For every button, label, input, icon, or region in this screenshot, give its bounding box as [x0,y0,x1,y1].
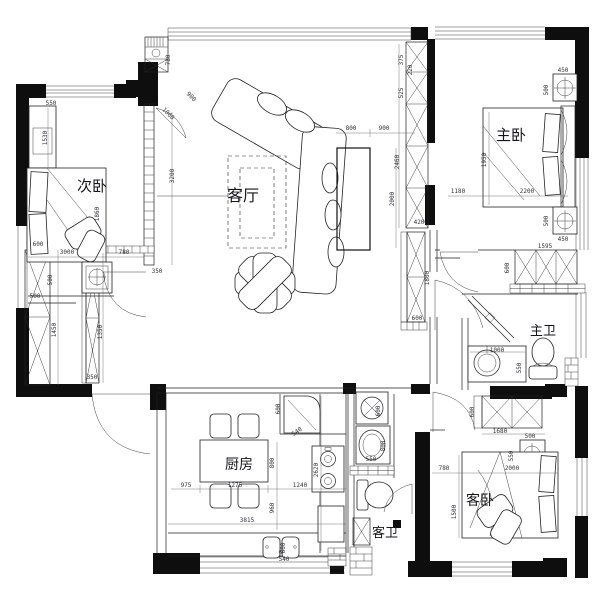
dim-label: 375 [398,54,405,65]
floorplan-drawing: 次卧客厅主卧主卫厨房客卫客卧 5501530186030007805005006… [0,0,600,600]
dim-label: 350 [152,268,163,275]
dim-label: 550 [46,100,57,107]
dim-label: 540 [279,556,290,563]
dim-label: 1950 [481,152,488,167]
dim-label: 600 [280,542,287,553]
room-label-zhuwo: 主卧 [496,126,526,144]
dim-label: 1350 [97,324,104,339]
dim-label: 2200 [520,188,535,195]
dim-label: 780 [439,465,450,472]
dim-label: 2620 [313,462,320,477]
furniture-master [483,74,577,234]
dim-label: 600 [33,241,44,248]
dim-label: 2000 [505,465,520,472]
dim-label: 1450 [51,322,58,337]
dim-label: 500 [30,293,41,300]
dim-label: 1060 [160,106,175,121]
dim-label: 1530 [42,130,49,145]
lounge-chair-cluster [235,253,295,313]
room-label-kewo: 客卧 [466,492,494,509]
dim-label: 420 [414,219,425,226]
dim-label: 600 [469,406,476,417]
dim-label: 960 [269,502,276,513]
dim-label: 1000 [490,347,505,354]
dim-label: 800 [346,125,357,132]
tv-feature-wall [144,104,154,265]
dim-label: 550 [366,456,377,463]
room-label-kewei: 客卫 [372,525,398,541]
dim-label: 780 [119,249,130,256]
dim-label: 975 [181,482,192,489]
room-label-ciwo: 次卧 [77,177,107,195]
dim-label: 500 [543,215,550,226]
dim-label: 600 [504,262,511,273]
dim-label: 350 [87,374,98,381]
dim-label: 3200 [169,168,176,183]
dim-label: 1860 [94,206,101,221]
dim-label: 780 [165,54,172,65]
dim-label: 500 [543,84,550,95]
dim-label: 1180 [451,188,466,195]
dim-label: 500 [47,274,54,285]
dim-label: 3000 [60,249,75,256]
dim-label: 450 [558,67,569,74]
floorplan-canvas: 次卧客厅主卧主卫厨房客卫客卧 5501530186030007805005006… [0,0,600,600]
dim-label: 800 [380,440,387,451]
dim-label: 450 [558,236,569,243]
dim-label: 2460 [394,154,401,169]
dim-label: 525 [398,87,405,98]
dim-label: 600 [275,403,282,414]
dim-label: 1500 [451,504,458,519]
room-label-keting: 客厅 [227,186,259,205]
dim-label: 1595 [538,243,553,250]
dim-label: 550 [508,450,515,461]
furniture-bedroom2 [27,106,112,293]
dim-label: 800 [269,457,276,468]
dim-label: 3815 [240,517,255,524]
dim-label: 1275 [228,482,243,489]
dim-label: 900 [185,91,198,104]
dim-label: 550 [516,362,523,373]
dim-label: 2000 [389,191,396,206]
dim-label: 900 [379,125,390,132]
dim-label: 1800 [424,270,431,285]
dim-label: 600 [375,405,382,416]
dim-label: 500 [525,433,536,440]
room-label-chufang: 厨房 [225,457,253,473]
dim-label: 1680 [493,428,508,435]
dim-label: 220 [407,64,414,75]
fixtures-master-bath [468,296,557,382]
dim-label: 1240 [293,482,308,489]
dim-label: 600 [412,315,423,322]
furniture-living [157,75,370,313]
room-label-zhuwei: 主卫 [530,324,556,339]
